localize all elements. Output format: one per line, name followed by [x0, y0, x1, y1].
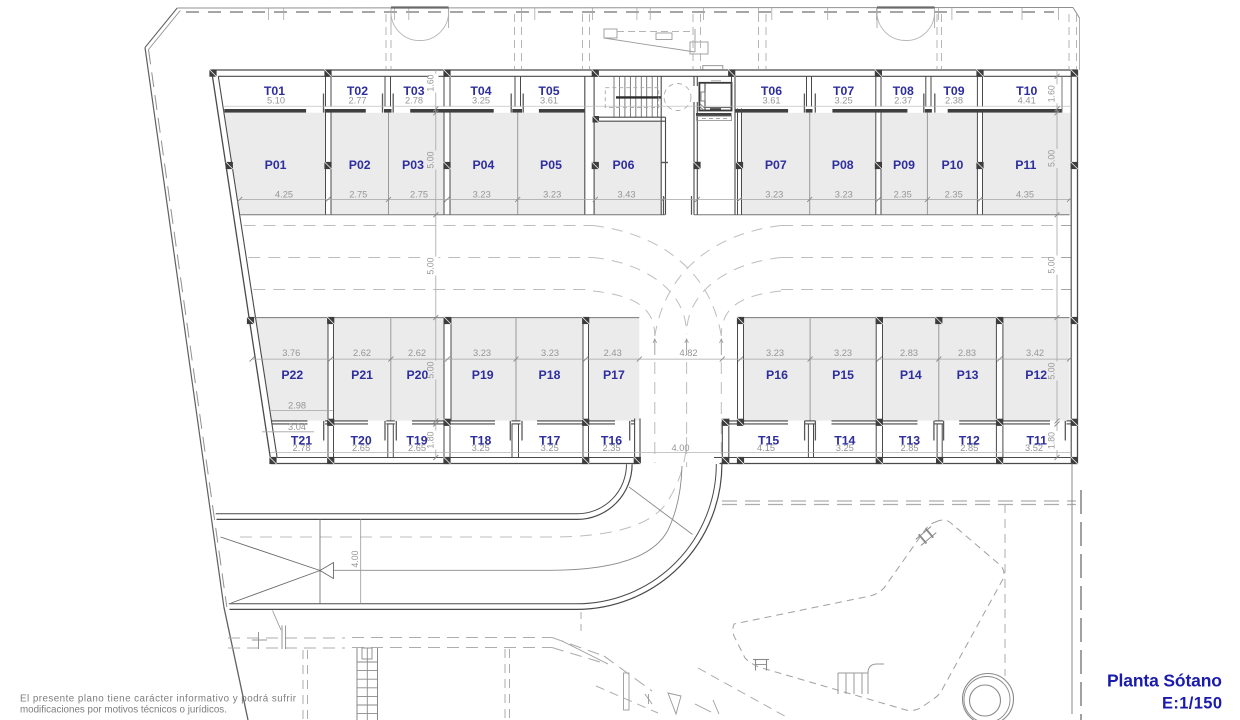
svg-text:P10: P10	[941, 158, 963, 172]
svg-text:3.25: 3.25	[836, 443, 854, 453]
svg-text:4.00: 4.00	[671, 443, 689, 453]
svg-text:3.23: 3.23	[766, 348, 784, 358]
svg-text:4.25: 4.25	[275, 189, 293, 199]
svg-text:5.00: 5.00	[1047, 256, 1057, 273]
svg-text:4.35: 4.35	[1016, 189, 1034, 199]
svg-text:2.43: 2.43	[604, 348, 622, 358]
svg-text:4.15: 4.15	[757, 443, 775, 453]
svg-text:5.10: 5.10	[267, 96, 285, 106]
svg-text:2.83: 2.83	[900, 348, 918, 358]
svg-text:2.65: 2.65	[408, 443, 426, 453]
svg-text:P18: P18	[539, 368, 561, 382]
svg-text:P07: P07	[765, 158, 787, 172]
svg-text:2.78: 2.78	[292, 443, 310, 453]
svg-text:P21: P21	[351, 368, 373, 382]
svg-text:3.61: 3.61	[540, 96, 558, 106]
svg-text:P19: P19	[472, 368, 494, 382]
svg-text:3.23: 3.23	[834, 348, 852, 358]
svg-text:3.23: 3.23	[473, 189, 491, 199]
svg-text:3.43: 3.43	[617, 189, 635, 199]
svg-text:1.60: 1.60	[425, 74, 435, 91]
svg-text:P03: P03	[402, 158, 424, 172]
svg-text:2.75: 2.75	[410, 189, 428, 199]
svg-text:1.60: 1.60	[1047, 85, 1057, 102]
svg-text:5.00: 5.00	[425, 361, 435, 378]
svg-text:2.35: 2.35	[894, 189, 912, 199]
svg-text:3.23: 3.23	[543, 189, 561, 199]
svg-text:2.75: 2.75	[349, 189, 367, 199]
svg-text:3.23: 3.23	[765, 189, 783, 199]
svg-text:P05: P05	[540, 158, 562, 172]
svg-text:2.62: 2.62	[353, 348, 371, 358]
svg-text:3.61: 3.61	[762, 96, 780, 106]
svg-text:P02: P02	[349, 158, 371, 172]
svg-text:P06: P06	[613, 158, 635, 172]
svg-text:P15: P15	[832, 368, 854, 382]
svg-text:2.35: 2.35	[945, 189, 963, 199]
svg-text:3.25: 3.25	[472, 96, 490, 106]
svg-text:4.41: 4.41	[1018, 96, 1036, 106]
svg-text:3.23: 3.23	[541, 348, 559, 358]
svg-text:3.25: 3.25	[835, 96, 853, 106]
svg-text:P11: P11	[1015, 158, 1036, 172]
svg-text:1.80: 1.80	[425, 431, 435, 448]
svg-text:3.23: 3.23	[835, 189, 853, 199]
svg-text:2.38: 2.38	[945, 96, 963, 106]
svg-text:3.76: 3.76	[282, 348, 300, 358]
svg-text:P12: P12	[1025, 368, 1047, 382]
svg-text:3.25: 3.25	[541, 443, 559, 453]
svg-text:P08: P08	[832, 158, 854, 172]
svg-text:3.04: 3.04	[288, 422, 306, 432]
svg-text:5.00: 5.00	[1047, 362, 1057, 379]
svg-text:2.83: 2.83	[958, 348, 976, 358]
svg-text:5.00: 5.00	[1047, 150, 1057, 167]
svg-text:2.85: 2.85	[900, 443, 918, 453]
svg-text:2.98: 2.98	[288, 400, 306, 410]
svg-text:2.78: 2.78	[405, 96, 423, 106]
svg-text:El presente plano tiene caráct: El presente plano tiene carácter informa…	[20, 694, 297, 705]
svg-text:modificaciones por motivos téc: modificaciones por motivos técnicos o ju…	[20, 705, 227, 716]
svg-text:P14: P14	[900, 368, 922, 382]
svg-text:3.25: 3.25	[472, 443, 490, 453]
svg-text:P17: P17	[603, 368, 625, 382]
svg-text:P22: P22	[281, 368, 303, 382]
svg-text:E:1/150: E:1/150	[1162, 695, 1222, 713]
svg-text:5.00: 5.00	[425, 257, 435, 274]
svg-text:P13: P13	[957, 368, 979, 382]
svg-text:2.35: 2.35	[602, 443, 620, 453]
svg-text:P09: P09	[893, 158, 915, 172]
svg-text:2.65: 2.65	[352, 443, 370, 453]
svg-text:5.00: 5.00	[425, 151, 435, 168]
svg-text:3.23: 3.23	[473, 348, 491, 358]
svg-text:4.00: 4.00	[350, 550, 360, 567]
svg-text:2.85: 2.85	[960, 443, 978, 453]
svg-text:1.80: 1.80	[1047, 432, 1057, 449]
svg-text:Planta Sótano: Planta Sótano	[1107, 671, 1222, 691]
svg-text:3.42: 3.42	[1026, 348, 1044, 358]
svg-text:2.62: 2.62	[408, 348, 426, 358]
svg-text:P04: P04	[472, 158, 494, 172]
svg-text:2.37: 2.37	[894, 96, 912, 106]
svg-text:3.52: 3.52	[1025, 443, 1043, 453]
svg-text:2.77: 2.77	[348, 96, 366, 106]
svg-text:P16: P16	[766, 368, 788, 382]
svg-text:4.82: 4.82	[679, 348, 697, 358]
svg-text:P01: P01	[265, 158, 287, 172]
